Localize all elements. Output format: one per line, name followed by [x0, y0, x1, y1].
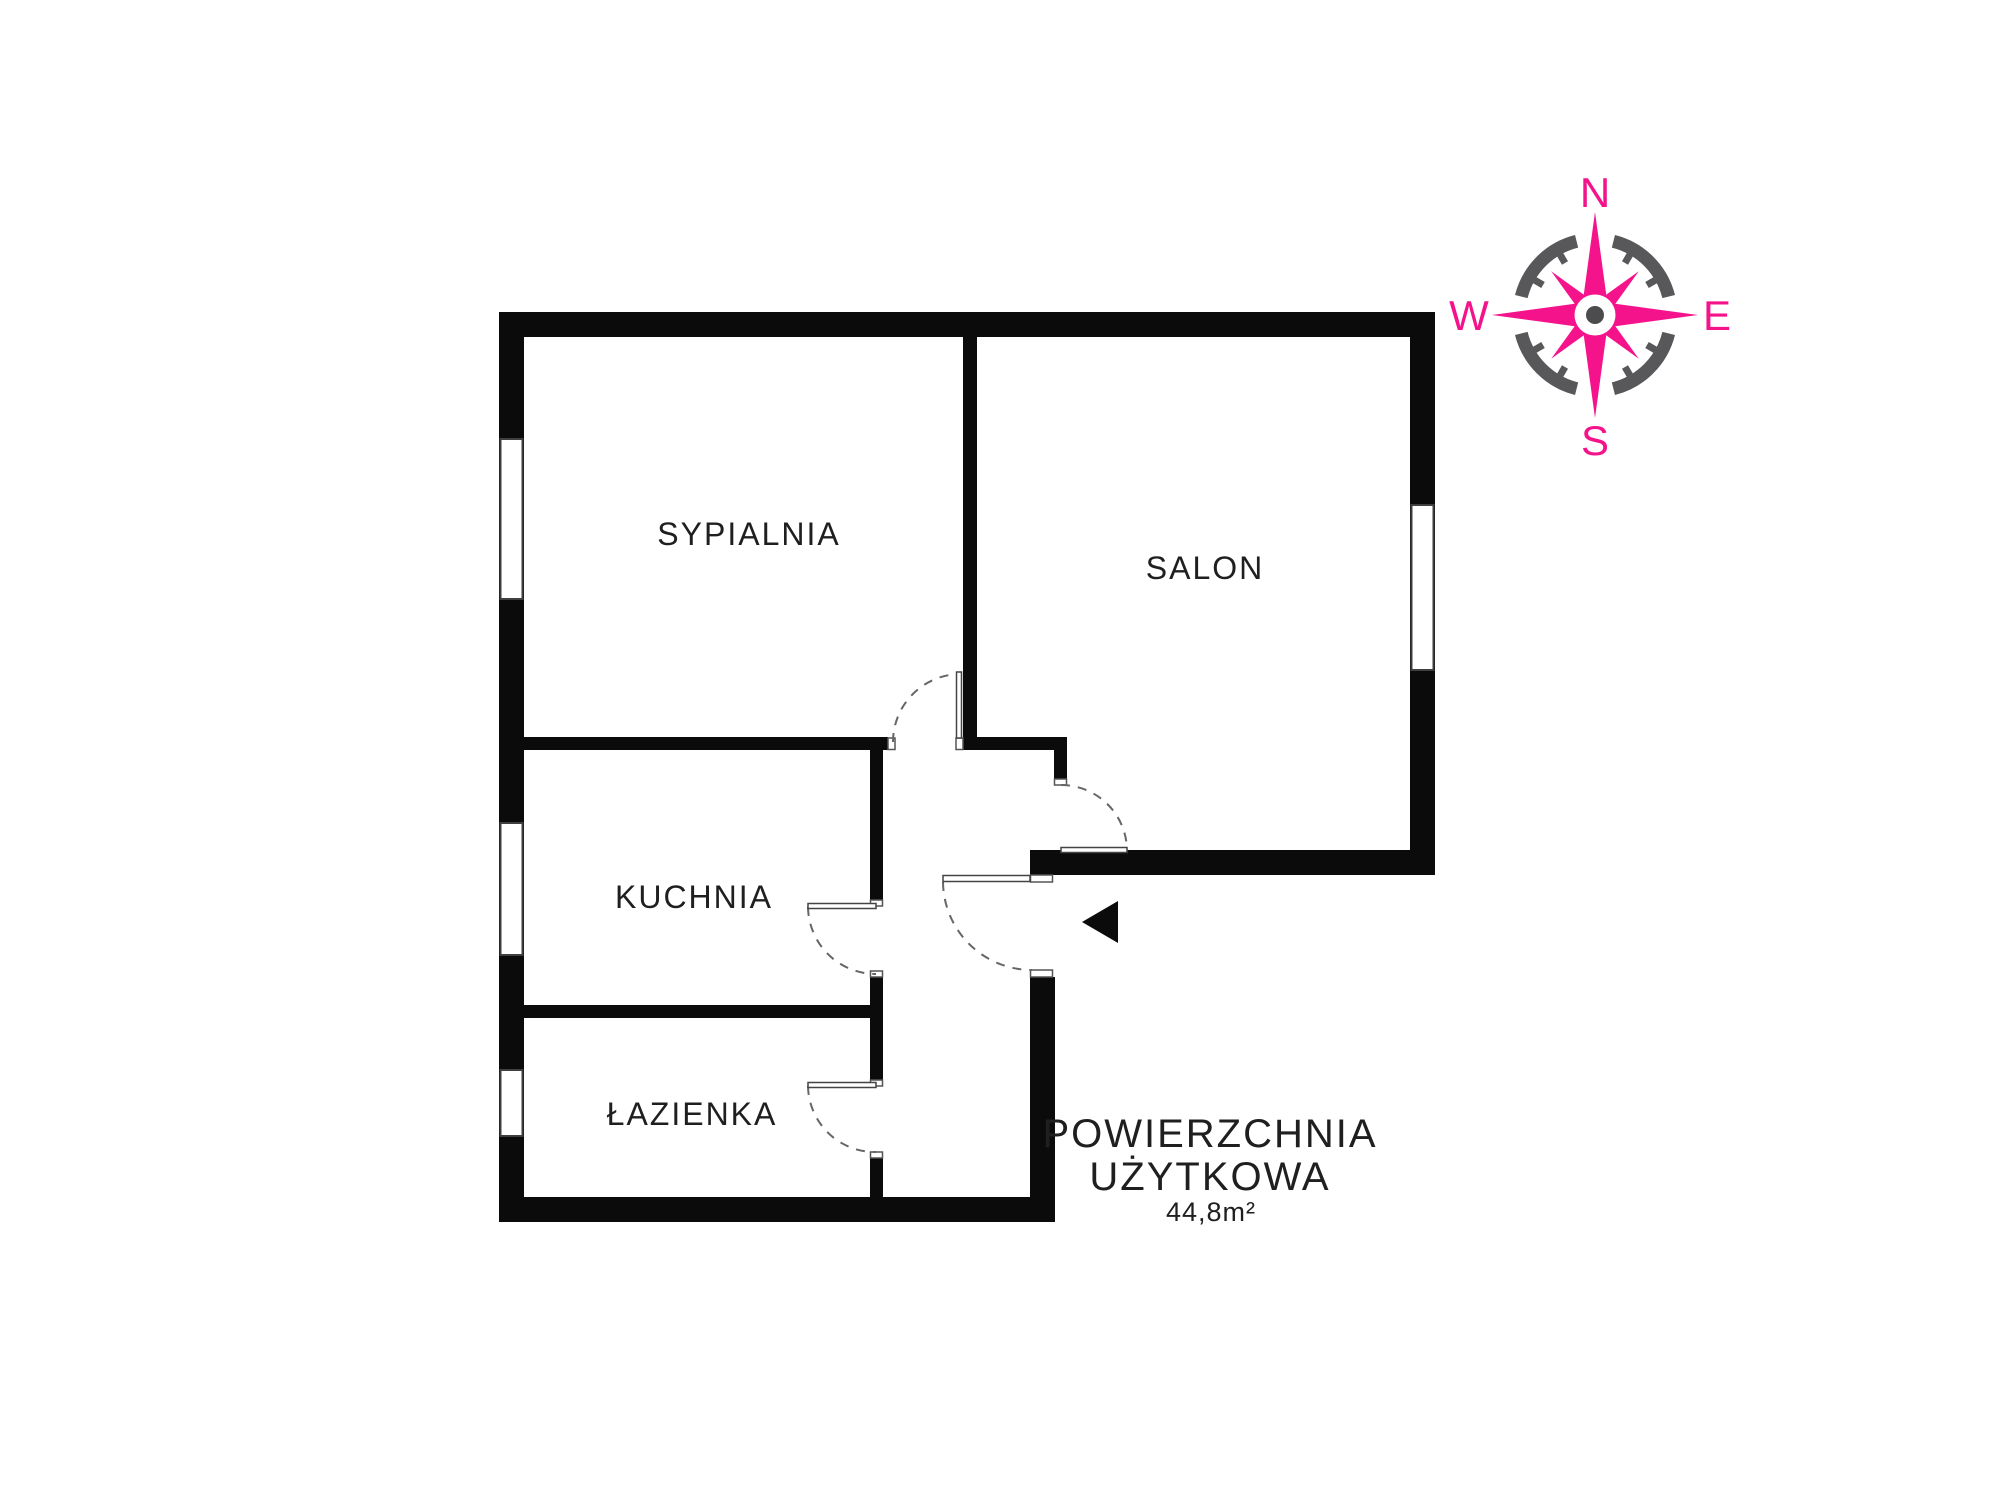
- window-lazienka: [501, 1070, 523, 1136]
- compass-label-west: W: [1449, 292, 1489, 339]
- door-jamb: [956, 738, 963, 750]
- wall-salon-south: [1030, 850, 1435, 875]
- door-swing-arc: [808, 1086, 876, 1152]
- floor-plan-canvas: SYPIALNIA SALON KUCHNIA ŁAZIENKA POWIERZ…: [0, 0, 2000, 1500]
- door-sypialnia: [888, 672, 963, 750]
- compass-label-south: S: [1581, 417, 1609, 464]
- window-kuchnia: [501, 823, 523, 955]
- compass-hub-dot: [1586, 306, 1604, 324]
- wall-hall-right: [1030, 977, 1055, 1222]
- door-swing-arc: [1061, 785, 1127, 851]
- door-lazienka: [808, 1080, 883, 1158]
- room-label-salon: SALON: [1146, 550, 1264, 586]
- area-title-line1: POWIERZCHNIA: [1042, 1112, 1377, 1156]
- door-jamb: [871, 971, 883, 977]
- door-leaf: [808, 904, 876, 909]
- door-jamb: [871, 1152, 883, 1158]
- wall-divider-sypialnia-salon: [963, 337, 977, 750]
- door-leaf: [1061, 848, 1127, 853]
- door-jamb: [1031, 970, 1053, 977]
- room-label-sypialnia: SYPIALNIA: [657, 516, 840, 552]
- area-title-line2: UŻYTKOWA: [1089, 1154, 1330, 1199]
- door-leaf: [808, 1083, 876, 1088]
- door-salon: [1055, 779, 1128, 853]
- room-labels: SYPIALNIA SALON KUCHNIA ŁAZIENKA: [607, 516, 1265, 1132]
- window-sypialnia: [501, 439, 523, 599]
- wall-salon-step-vertical: [1054, 750, 1067, 779]
- door-swing-arc: [808, 907, 876, 974]
- compass-label-east: E: [1703, 292, 1731, 339]
- room-label-lazienka: ŁAZIENKA: [607, 1096, 778, 1132]
- wall-kuchnia-lazienka-divider: [524, 1005, 883, 1018]
- entrance-arrow-icon: [1082, 901, 1118, 943]
- floor-plan-page: SYPIALNIA SALON KUCHNIA ŁAZIENKA POWIERZ…: [0, 0, 2000, 1500]
- door-swing-arc: [893, 674, 961, 742]
- door-jamb: [1055, 779, 1067, 785]
- wall-bottom: [499, 1197, 1055, 1222]
- door-leaf: [943, 876, 1030, 882]
- area-caption: POWIERZCHNIA UŻYTKOWA 44,8m²: [1042, 1112, 1377, 1227]
- wall-sypialnia-south: [524, 737, 888, 750]
- wall-lazienka-east-upper: [870, 1018, 883, 1080]
- compass-rose-icon: N E S W: [1449, 169, 1731, 464]
- door-swing-arc: [943, 882, 1032, 970]
- compass-label-north: N: [1580, 169, 1610, 216]
- room-label-kuchnia: KUCHNIA: [615, 879, 773, 915]
- area-value: 44,8m²: [1166, 1197, 1256, 1227]
- door-entrance: [943, 875, 1053, 977]
- door-kuchnia: [808, 900, 883, 977]
- wall-lazienka-east-lower: [870, 1158, 883, 1197]
- wall-top: [499, 312, 1435, 337]
- walls: [499, 312, 1435, 1222]
- wall-kuchnia-east-upper: [870, 750, 883, 900]
- window-salon: [1412, 505, 1434, 670]
- door-leaf: [957, 672, 962, 738]
- wall-salon-step-horizontal: [977, 737, 1067, 750]
- wall-kuchnia-east-lower: [870, 977, 883, 1005]
- door-jamb: [1031, 875, 1053, 882]
